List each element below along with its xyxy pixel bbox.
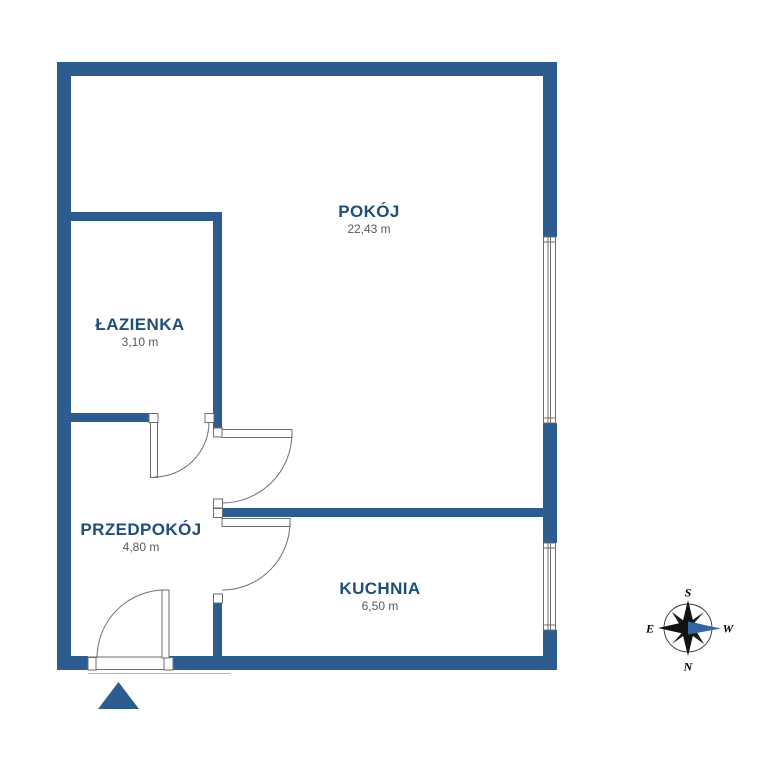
room-name: KUCHNIA — [339, 580, 420, 598]
room-label-pokoj: POKÓJ 22,43 m — [338, 203, 400, 236]
compass-label-west: W — [723, 622, 735, 636]
room-area: 4,80 m — [80, 540, 201, 554]
room-name: POKÓJ — [338, 203, 400, 221]
room-area: 22,43 m — [338, 222, 400, 236]
wall-outer-bottom-right — [168, 656, 557, 670]
wall-kitchen-top — [222, 508, 543, 517]
wall-outer-bottom-left — [57, 656, 88, 670]
entrance-arrow — [98, 682, 139, 709]
door-bathroom — [149, 414, 214, 478]
compass-label-south: S — [685, 586, 692, 600]
room-label-lazienka: ŁAZIENKA 3,10 m — [95, 316, 184, 349]
window-kitchen — [544, 543, 556, 630]
wall-outer-left — [57, 62, 71, 670]
wall-outer-right-upper — [543, 62, 557, 237]
compass-west-arrow — [688, 622, 721, 635]
compass-label-east: E — [645, 622, 654, 636]
compass-label-north: N — [683, 660, 694, 674]
floor-plan: S N E W POKÓJ 22,43 m ŁAZIENKA 3,10 m PR… — [0, 0, 780, 768]
window-living-room — [544, 237, 556, 423]
wall-bathroom-top — [71, 212, 222, 221]
wall-outer-top — [57, 62, 557, 76]
wall-outer-right-middle — [543, 423, 557, 543]
wall-hall-kitchen — [213, 603, 222, 656]
compass-rose: S N E W — [645, 586, 735, 674]
room-name: PRZEDPOKÓJ — [80, 521, 201, 539]
room-area: 3,10 m — [95, 335, 184, 349]
floor-plan-drawing: S N E W — [0, 0, 780, 768]
wall-bathroom-bottom — [71, 413, 150, 422]
room-label-kuchnia: KUCHNIA 6,50 m — [339, 580, 420, 613]
door-living-room — [214, 428, 293, 508]
wall-outer-right-lower — [543, 630, 557, 670]
room-area: 6,50 m — [339, 599, 420, 613]
room-name: ŁAZIENKA — [95, 316, 184, 334]
room-label-przedpokoj: PRZEDPOKÓJ 4,80 m — [80, 521, 201, 554]
wall-bathroom-right — [213, 212, 222, 428]
door-kitchen — [214, 509, 291, 604]
